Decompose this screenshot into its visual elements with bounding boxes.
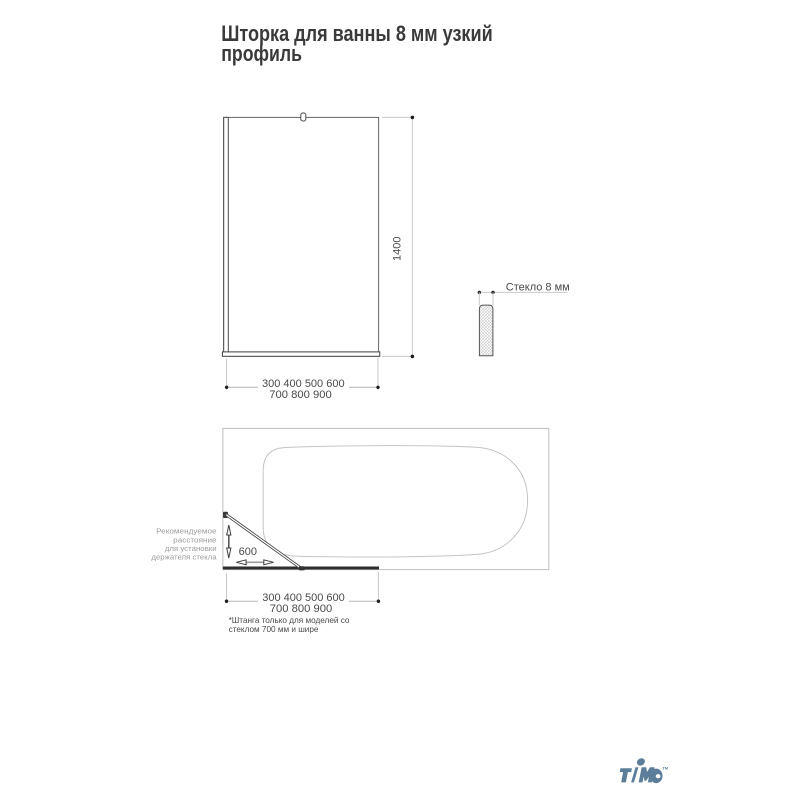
svg-text:600: 600 <box>239 546 257 558</box>
svg-text:Стекло 8 мм: Стекло 8 мм <box>506 281 570 293</box>
svg-text:700 800 900: 700 800 900 <box>269 389 332 401</box>
svg-text:*Штанга только для моделей со: *Штанга только для моделей со <box>229 616 350 625</box>
svg-text:1400: 1400 <box>391 237 403 261</box>
svg-text:TM: TM <box>662 765 668 770</box>
svg-text:стеклом 700 мм и шире: стеклом 700 мм и шире <box>229 625 319 634</box>
svg-text:профиль: профиль <box>221 41 302 66</box>
svg-text:Рекомендуемое: Рекомендуемое <box>156 527 217 536</box>
svg-text:700 800 900: 700 800 900 <box>270 603 333 615</box>
svg-text:держателя стекла: держателя стекла <box>151 552 217 561</box>
